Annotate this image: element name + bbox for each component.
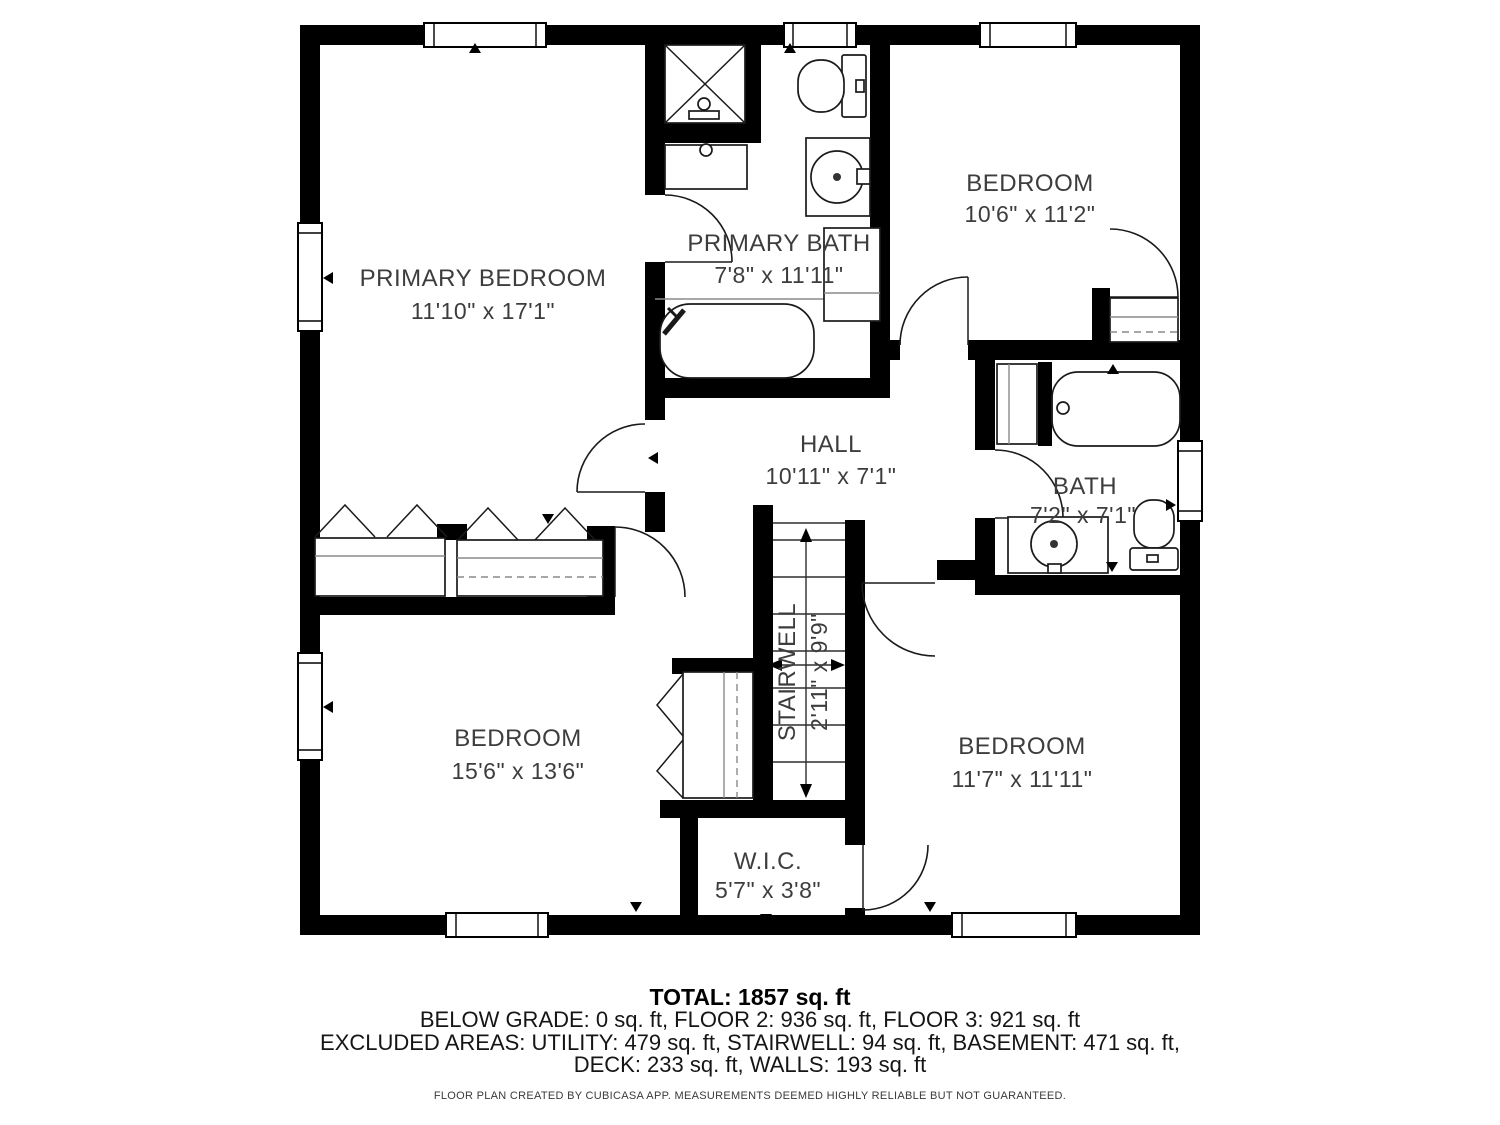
room-dims: 11'7" x 11'11" [952, 766, 1093, 792]
room-dims: 2'11" x 9'9" [806, 613, 832, 731]
linen-closet-icon [997, 364, 1037, 444]
room-label-wic: W.I.C. 5'7" x 3'8" [715, 848, 821, 903]
room-name: PRIMARY BATH [687, 230, 870, 257]
room-label-bath: BATH 7'2" x 7'1" [1030, 473, 1136, 528]
room-name: BEDROOM [958, 733, 1086, 760]
room-label-bedroom-top-right: BEDROOM 10'6" x 11'2" [965, 170, 1096, 227]
window [1178, 441, 1202, 521]
toilet-icon [798, 55, 866, 117]
room-dims: 10'11" x 7'1" [766, 463, 897, 489]
room-dims: 5'7" x 3'8" [715, 877, 821, 903]
room-name: PRIMARY BEDROOM [360, 265, 607, 292]
room-dims: 7'2" x 7'1" [1030, 502, 1136, 528]
closet-icon [315, 538, 445, 596]
door-primary-bedroom [577, 424, 645, 492]
room-dims: 10'6" x 11'2" [965, 201, 1096, 227]
bathtub-icon [660, 304, 814, 378]
vanity-icon [665, 144, 747, 189]
door-bedroom-bottom-left [615, 527, 685, 597]
closet-icon [1110, 298, 1178, 342]
door-closet-top-right [1110, 229, 1178, 297]
room-name: BATH [1053, 473, 1117, 500]
floor-areas: BELOW GRADE: 0 sq. ft, FLOOR 2: 936 sq. … [0, 1009, 1500, 1032]
room-name: STAIRWELL [774, 603, 801, 741]
closet-icon [683, 672, 753, 798]
room-name: BEDROOM [966, 170, 1094, 197]
floor-plan-drawing: PRIMARY BEDROOM 11'10" x 17'1" PRIMARY B… [0, 0, 1500, 1125]
sink-icon [806, 138, 870, 216]
door-wic [863, 845, 928, 910]
room-name: W.I.C. [734, 848, 802, 875]
room-label-primary-bedroom: PRIMARY BEDROOM 11'10" x 17'1" [360, 265, 607, 324]
room-label-hall: HALL 10'11" x 7'1" [766, 431, 897, 489]
room-label-stairwell: STAIRWELL 2'11" x 9'9" [774, 603, 832, 741]
window [298, 223, 322, 331]
total-area: TOTAL: 1857 sq. ft [0, 986, 1500, 1009]
window [980, 23, 1076, 47]
room-dims: 11'10" x 17'1" [411, 298, 555, 324]
excluded-areas-2: DECK: 233 sq. ft, WALLS: 193 sq. ft [0, 1054, 1500, 1077]
room-dims: 15'6" x 13'6" [452, 758, 585, 784]
window [952, 913, 1076, 937]
closet-icon [457, 540, 603, 596]
window [446, 913, 548, 937]
floor-plan-page: PRIMARY BEDROOM 11'10" x 17'1" PRIMARY B… [0, 0, 1500, 1125]
bathtub-icon [1052, 372, 1180, 446]
room-label-bedroom-bottom-left: BEDROOM 15'6" x 13'6" [452, 725, 585, 784]
disclaimer: FLOOR PLAN CREATED BY CUBICASA APP. MEAS… [0, 1090, 1500, 1102]
room-name: BEDROOM [454, 725, 582, 752]
bifold-door-icon [657, 674, 683, 798]
window [784, 23, 856, 47]
window [424, 23, 546, 47]
room-dims: 7'8" x 11'11" [714, 262, 843, 288]
excluded-areas: EXCLUDED AREAS: UTILITY: 479 sq. ft, STA… [0, 1032, 1500, 1055]
window [298, 653, 322, 760]
room-label-bedroom-bottom-right: BEDROOM 11'7" x 11'11" [952, 733, 1093, 792]
door-bedroom-top-right [900, 277, 968, 345]
room-name: HALL [800, 431, 862, 458]
toilet-icon [1130, 500, 1178, 570]
door-bedroom-bottom-right [862, 583, 935, 656]
summary-footer: TOTAL: 1857 sq. ft BELOW GRADE: 0 sq. ft… [0, 986, 1500, 1102]
shower-icon [665, 45, 745, 123]
